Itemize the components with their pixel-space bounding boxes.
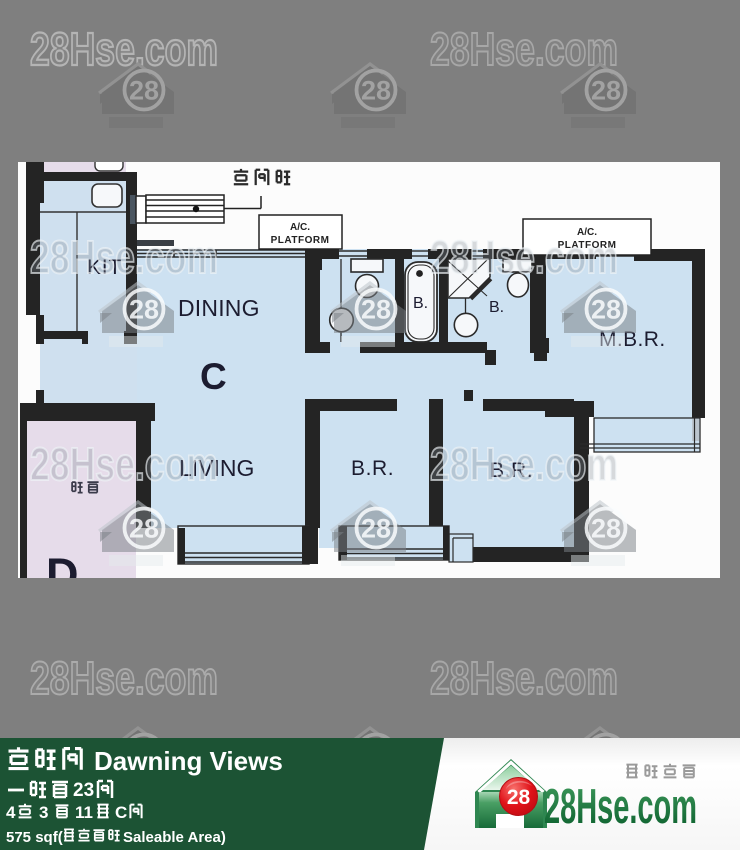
svg-text:28Hse.com: 28Hse.com — [30, 652, 218, 704]
svg-text:28Hse.com: 28Hse.com — [430, 438, 618, 490]
svg-text:3: 3 — [39, 803, 48, 822]
svg-text:11: 11 — [75, 803, 93, 822]
svg-text:A/C.: A/C. — [290, 222, 310, 233]
svg-text:23: 23 — [73, 780, 94, 801]
svg-text:575 sqf(: 575 sqf( — [6, 829, 63, 846]
svg-text:28Hse.com: 28Hse.com — [430, 23, 618, 75]
svg-text:Saleable Area): Saleable Area) — [123, 829, 226, 846]
svg-text:28Hse.com: 28Hse.com — [30, 438, 218, 490]
svg-text:28Hse.com: 28Hse.com — [544, 780, 697, 834]
svg-text:28Hse.com: 28Hse.com — [30, 23, 218, 75]
svg-text:B.R.: B.R. — [351, 457, 394, 480]
svg-text:B.: B. — [489, 299, 504, 316]
svg-text:28Hse.com: 28Hse.com — [30, 231, 218, 283]
svg-text:28Hse.com: 28Hse.com — [430, 652, 618, 704]
svg-text:4: 4 — [6, 803, 16, 822]
svg-text:C: C — [115, 803, 127, 822]
svg-text:B.: B. — [413, 295, 428, 312]
svg-text:28Hse.com: 28Hse.com — [430, 231, 618, 283]
svg-text:C: C — [200, 356, 227, 397]
svg-text:28: 28 — [507, 786, 531, 809]
svg-text:DINING: DINING — [178, 295, 260, 321]
svg-text:Dawning Views: Dawning Views — [94, 746, 283, 776]
svg-text:PLATFORM: PLATFORM — [271, 235, 330, 246]
